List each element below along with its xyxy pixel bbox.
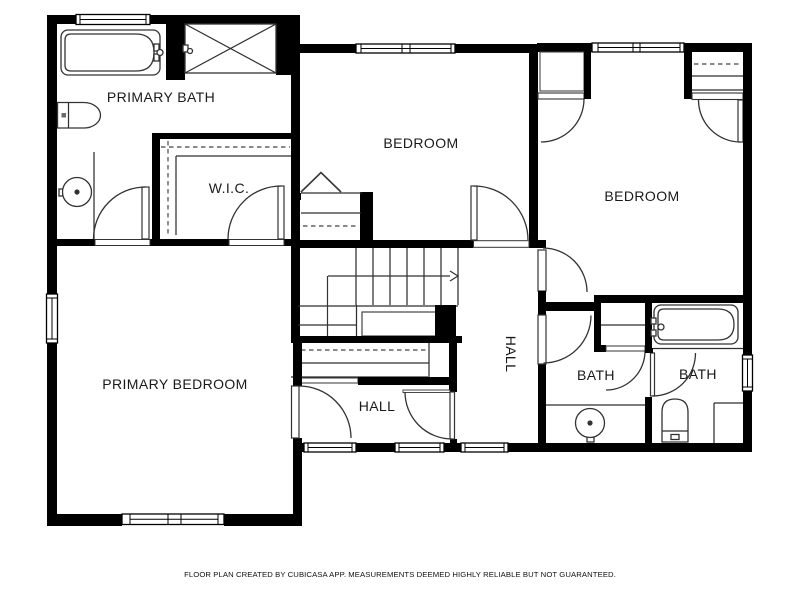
svg-text:BEDROOM: BEDROOM bbox=[604, 188, 679, 204]
svg-text:PRIMARY BATH: PRIMARY BATH bbox=[107, 89, 215, 105]
svg-text:W.I.C.: W.I.C. bbox=[209, 180, 250, 196]
svg-text:BATH: BATH bbox=[679, 366, 717, 382]
svg-text:FLOOR PLAN CREATED BY CUBICASA: FLOOR PLAN CREATED BY CUBICASA APP. MEAS… bbox=[184, 570, 616, 579]
svg-text:BATH: BATH bbox=[577, 367, 615, 383]
svg-text:BEDROOM: BEDROOM bbox=[383, 135, 458, 151]
svg-text:HALL: HALL bbox=[359, 398, 396, 414]
svg-text:PRIMARY BEDROOM: PRIMARY BEDROOM bbox=[102, 376, 248, 392]
svg-text:HALL: HALL bbox=[503, 336, 519, 373]
